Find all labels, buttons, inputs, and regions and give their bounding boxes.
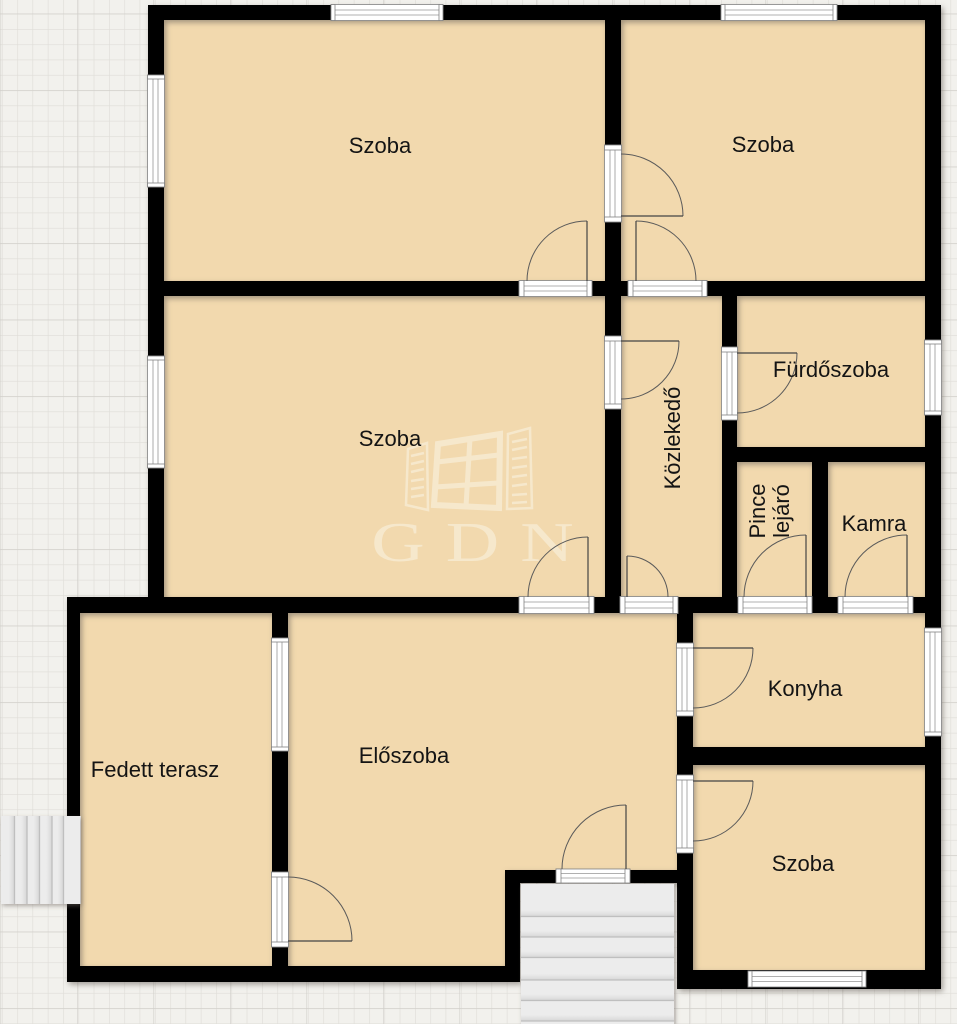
svg-text:Konyha: Konyha (768, 676, 843, 701)
svg-text:Szoba: Szoba (359, 426, 422, 451)
svg-text:Szoba: Szoba (772, 851, 835, 876)
svg-text:Szoba: Szoba (732, 132, 795, 157)
svg-text:Közlekedő: Közlekedő (660, 387, 685, 490)
svg-text:Előszoba: Előszoba (359, 743, 450, 768)
svg-text:Pincelejáró: Pincelejáró (745, 483, 794, 538)
svg-text:Fürdőszoba: Fürdőszoba (773, 357, 890, 382)
svg-text:Kamra: Kamra (842, 511, 908, 536)
svg-text:Szoba: Szoba (349, 133, 412, 158)
svg-text:Fedett terasz: Fedett terasz (91, 757, 219, 782)
